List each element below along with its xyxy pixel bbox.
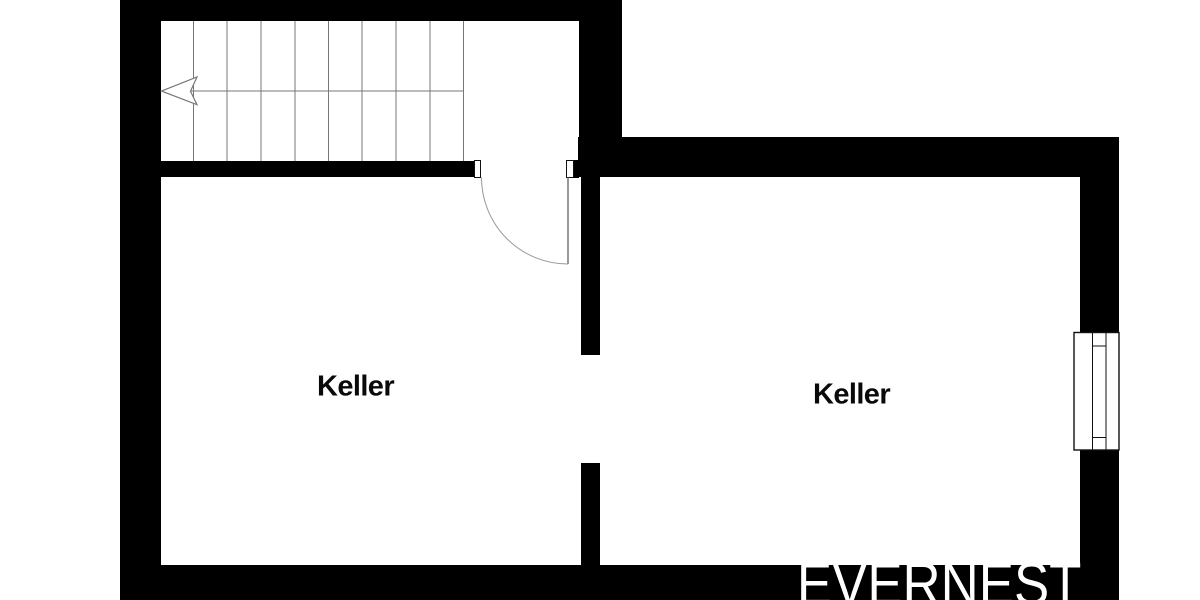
svg-text:EVERNEST: EVERNEST xyxy=(797,551,1082,600)
svg-text:Keller: Keller xyxy=(813,379,890,411)
svg-text:Keller: Keller xyxy=(317,371,394,403)
